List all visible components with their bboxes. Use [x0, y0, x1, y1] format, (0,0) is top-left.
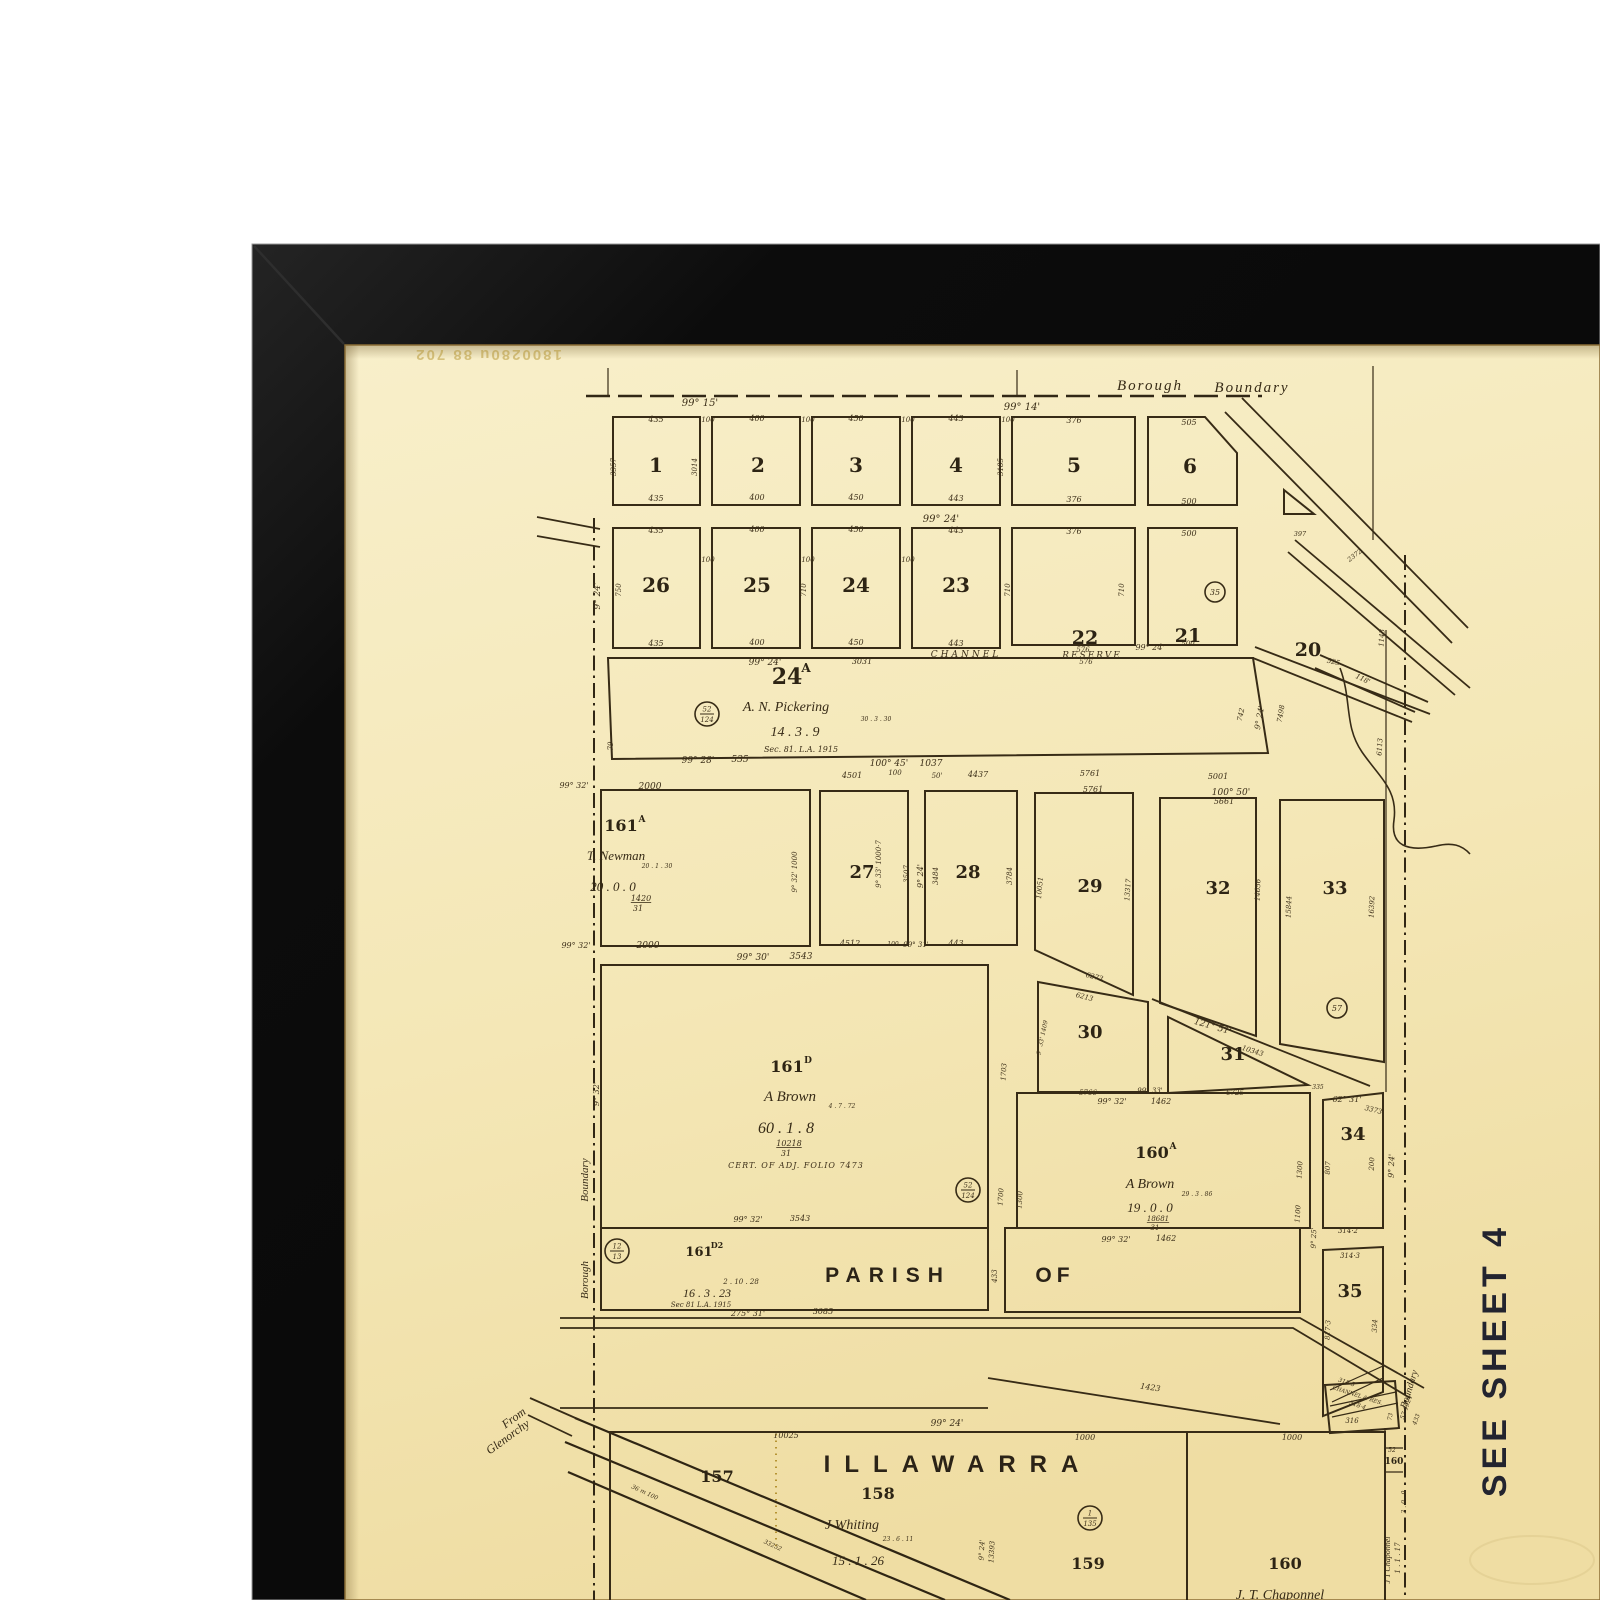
map-label: 3507 [903, 865, 911, 883]
map-paper [345, 345, 1600, 1600]
map-label: 435 [647, 494, 663, 503]
map-label: A [638, 815, 647, 825]
map-label: 1100 [1293, 1204, 1302, 1223]
map-label: 397 [1294, 530, 1307, 538]
svg-text:1: 1 [1088, 1510, 1092, 1518]
map-label: 35 [1337, 1281, 1362, 1302]
map-label: 4512 [839, 939, 860, 948]
map-label: 435 [647, 526, 663, 535]
map-label: 31 [1151, 1224, 1160, 1232]
map-label: 161 [685, 1245, 712, 1260]
map-label: 443 [947, 494, 963, 503]
svg-text:124: 124 [700, 716, 713, 724]
map-label: 6113 [1376, 737, 1385, 756]
map-label: 535 [731, 755, 748, 765]
map-label: 1037 [920, 759, 943, 769]
map-label: 400 [748, 493, 764, 502]
map-label: 3031 [852, 657, 872, 666]
map-label: 4437 [967, 770, 989, 779]
map-label: 10025 [773, 1431, 798, 1440]
map-label: 5766 [1079, 1089, 1097, 1097]
map-svg: BoroughBoundary99° 15'99° 14'12345643540… [0, 0, 1600, 1600]
map-label: 1420 [631, 894, 651, 903]
map-label: Borough [579, 1260, 591, 1299]
map-label: 433 [991, 1269, 999, 1284]
map-label: 5001 [1208, 772, 1228, 781]
map-label: 73 [1386, 1412, 1394, 1421]
map-label: 505 [1181, 418, 1196, 427]
map-label: 450 [847, 638, 863, 647]
map-label: 100° 45' [870, 759, 908, 769]
map-label: 2000 [638, 782, 662, 792]
map-label: 3784 [1006, 867, 1014, 885]
map-label: 29 [1077, 876, 1102, 897]
map-label: 20 . 0 . 0 [590, 879, 636, 894]
map-label: 376 [1066, 416, 1081, 425]
map-label: 15 . 1 . 26 [832, 1553, 885, 1568]
map-label: 160 [1135, 1143, 1168, 1162]
map-label: CHANNEL [931, 650, 1002, 660]
map-label: 100 [901, 556, 915, 564]
map-label: 50' [932, 772, 943, 780]
map-label: 334 [1371, 1319, 1379, 1333]
map-label: 34 [1340, 1124, 1365, 1145]
map-label: 24 [842, 573, 870, 597]
map-label: 450 [847, 525, 863, 534]
map-label: 100 [1001, 416, 1015, 424]
map-label: 23 . 6 . 11 [882, 1536, 914, 1543]
map-label: 2 . 10 . 28 [722, 1278, 759, 1286]
map-label: 20 . 1 . 30 [641, 863, 673, 870]
framed-map-photo: BoroughBoundary99° 15'99° 14'12345643540… [0, 0, 1600, 1600]
map-label: 710 [1004, 583, 1012, 597]
map-label: 99° 32' [733, 1215, 762, 1224]
map-label: 13393 [987, 1540, 996, 1563]
map-label: 3543 [790, 1214, 810, 1223]
map-label: 19 . 0 . 0 [1127, 1200, 1173, 1215]
map-label: 9° 33' 1000·7 [875, 840, 883, 888]
map-label: 435 [647, 415, 663, 424]
map-label: 5761 [1083, 785, 1103, 794]
map-label: 16 . 3 . 23 [683, 1286, 731, 1300]
map-label: 376 [1066, 527, 1081, 536]
map-label: 807 [1324, 1161, 1332, 1175]
map-label: J. T. Chaponnel [1236, 1588, 1325, 1600]
map-label: 30 . 3 . 30 [861, 716, 892, 723]
map-label: 28 [955, 862, 980, 883]
map-label: 3484 [932, 867, 940, 885]
map-label: 1800280u 88 702 [414, 346, 562, 363]
map-label: 1 . 1 . 17 [1394, 1542, 1402, 1574]
map-label: 314·3 [1340, 1252, 1361, 1260]
map-label: 435 [647, 639, 663, 648]
map-label: 1000 [1075, 1433, 1095, 1442]
map-label: CERT. OF ADJ. FOLIO 7473 [728, 1161, 864, 1170]
map-label: 4 . 7 . 72 [828, 1103, 856, 1110]
map-label: 100 [901, 416, 915, 424]
map-label: J T Chaponnel [1383, 1536, 1392, 1584]
map-label: 1700 [997, 1187, 1006, 1206]
map-label: 1462 [1151, 1097, 1171, 1106]
map-label: 3185 [997, 458, 1005, 476]
map-label: OF [1035, 1264, 1074, 1287]
map-label: 31 [781, 1149, 791, 1158]
map-label: 161 [770, 1057, 803, 1076]
map-label: 13317 [1123, 878, 1133, 901]
map-label: 4501 [841, 771, 862, 780]
map-label: 99° 33' [1137, 1087, 1163, 1095]
map-label: 500 [1181, 497, 1196, 506]
map-label: 1143 [1378, 628, 1387, 647]
map-label: 25 [743, 573, 771, 597]
map-label: 1 [649, 453, 663, 477]
map-label: 9° 32' [592, 1082, 601, 1106]
map-label: 99° 32' [561, 941, 590, 950]
map-label: Sec 81 L.A. 1915 [671, 1301, 732, 1309]
svg-text:57: 57 [1332, 1004, 1343, 1013]
map-label: 710 [1118, 583, 1126, 597]
map-label: Sec. 81. L.A. 1915 [764, 745, 838, 754]
svg-text:13: 13 [613, 1253, 622, 1261]
map-label: 99° 32' [559, 781, 588, 790]
map-label: 400 [748, 414, 764, 423]
map-label: 3 [849, 453, 863, 477]
map-label: 9° 32' 1000 [791, 851, 799, 893]
map-label: 817·3 [1324, 1319, 1333, 1340]
map-label: 158 [861, 1484, 894, 1503]
map-label: D2 [711, 1240, 724, 1250]
map-label: 316 [1345, 1417, 1359, 1425]
map-label: 159 [1071, 1554, 1104, 1573]
map-label: 1000 [1282, 1433, 1302, 1442]
map-label: 160 [1385, 1457, 1404, 1467]
map-sheet [345, 345, 1600, 1600]
map-label: 2 [751, 453, 765, 477]
map-label: 443 [947, 526, 963, 535]
map-label: 24 [772, 664, 803, 690]
map-label: 9° 25' [1310, 1227, 1319, 1248]
map-label: 62° 31' [1332, 1095, 1361, 1104]
map-label: 161 [604, 816, 637, 835]
map-label: 100 [887, 941, 899, 948]
map-label: 3357 [610, 458, 618, 476]
map-label: 99° 32' [1097, 1097, 1126, 1106]
map-label: 100 [888, 769, 902, 777]
map-label: ILLAWARRA [824, 1451, 1093, 1478]
map-label: 23 [942, 573, 970, 597]
map-label: 100 [701, 556, 715, 564]
map-label: 100 [801, 416, 815, 424]
svg-text:12: 12 [613, 1243, 622, 1251]
map-label: 157 [700, 1467, 733, 1486]
map-label: SEE SHEET 4 [1476, 1223, 1514, 1497]
map-label: 99° 15' [682, 398, 718, 409]
map-label: 160 [1268, 1554, 1301, 1573]
map-label: Boundary [579, 1158, 591, 1202]
map-label: A Brown [1125, 1177, 1175, 1192]
map-label: D [804, 1056, 812, 1066]
map-label: 3 . 0 . 0 [1401, 1490, 1408, 1513]
map-label: 15844 [1285, 896, 1294, 919]
map-label: 4 [949, 453, 963, 477]
map-label: 10218 [776, 1139, 801, 1148]
map-label: 20 [1295, 639, 1321, 661]
frame-inner-shadow-left [345, 345, 359, 1600]
map-label: 400 [748, 525, 764, 534]
map-label: 9° 24' [593, 582, 603, 609]
map-label: 5661 [1214, 797, 1234, 806]
map-label: T. Newman [587, 848, 645, 863]
map-label: 450 [847, 414, 863, 423]
map-label: 52 [1388, 1447, 1396, 1454]
map-label: 31 [633, 904, 643, 913]
map-label: 99° 14' [1004, 402, 1040, 413]
map-label: 5 [1067, 453, 1081, 477]
svg-text:52: 52 [964, 1182, 973, 1190]
svg-text:52: 52 [703, 706, 712, 714]
map-label: A Brown [763, 1089, 816, 1105]
map-label: 500 [1181, 529, 1196, 538]
map-label: 16392 [1368, 895, 1377, 918]
map-label: 5761 [1080, 769, 1100, 778]
map-label: 18681 [1147, 1215, 1169, 1223]
map-label: 710 [800, 583, 808, 597]
map-label: A. N. Pickering [742, 700, 829, 715]
map-label: 99° 30' [737, 953, 770, 963]
map-label: 99° 24' [923, 514, 959, 525]
map-label: 443 [947, 639, 963, 648]
map-label: 29 . 3 . 86 [1181, 1191, 1213, 1198]
map-label: Borough [1117, 378, 1183, 394]
map-label: 6725 [1226, 1089, 1244, 1097]
map-label: 99° 28' [682, 756, 715, 766]
map-label: Boundary [1214, 380, 1289, 396]
map-label: 9° 24' [977, 1539, 986, 1560]
map-label: 30 [1077, 1022, 1102, 1043]
map-label: 100 [701, 416, 715, 424]
map-label: 32 [1205, 878, 1230, 899]
map-label: 14 . 3 . 9 [771, 725, 820, 740]
map-label: 443 [947, 414, 963, 423]
map-label: 27 [849, 862, 874, 883]
map-label: 33 [1322, 878, 1347, 899]
map-label: 60 . 1 . 8 [758, 1120, 814, 1137]
map-label: 500 [1181, 640, 1195, 648]
map-label: 99° 24' [931, 1419, 964, 1429]
map-label: J Whiting [825, 1518, 879, 1533]
map-label: 99° 32' [1101, 1235, 1130, 1244]
map-label: 400 [748, 638, 764, 647]
map-label: A [800, 661, 811, 675]
map-label: 26 [642, 573, 670, 597]
map-label: 200 [1368, 1157, 1377, 1172]
map-label: 3085 [813, 1307, 833, 1316]
map-label: 9° 24' [1387, 1154, 1397, 1178]
map-label: 275° 31' [730, 1309, 765, 1318]
map-label: PARISH [825, 1264, 951, 1287]
map-label: 100 [801, 556, 815, 564]
map-label: 376 [1066, 495, 1081, 504]
map-label: 14656 [1254, 878, 1263, 901]
map-label: RESERVE [1061, 651, 1122, 661]
map-label: 1300 [1296, 1160, 1305, 1179]
map-label: 443 [947, 939, 963, 948]
map-label: 2000 [636, 941, 660, 951]
map-label: 6 [1183, 454, 1197, 478]
map-label: 99° 31' [903, 941, 929, 949]
map-label: 3543 [790, 952, 813, 962]
map-label: 1462 [1156, 1234, 1176, 1243]
svg-text:135: 135 [1083, 1520, 1097, 1528]
map-label: 9° 24' [916, 864, 925, 888]
map-label: 335 [1312, 1084, 1324, 1091]
map-label: 750 [615, 583, 623, 597]
map-label: 3014 [691, 458, 699, 476]
map-label: 314·2 [1338, 1227, 1359, 1235]
svg-text:35: 35 [1210, 588, 1220, 597]
svg-text:124: 124 [961, 1192, 974, 1200]
map-label: 450 [847, 493, 863, 502]
map-label: 79 [607, 741, 615, 750]
map-label: A [1169, 1142, 1178, 1152]
map-label: 1703 [1000, 1062, 1009, 1081]
map-label: 99° 24' [1135, 643, 1164, 652]
map-label: 1300 [1016, 1190, 1025, 1209]
